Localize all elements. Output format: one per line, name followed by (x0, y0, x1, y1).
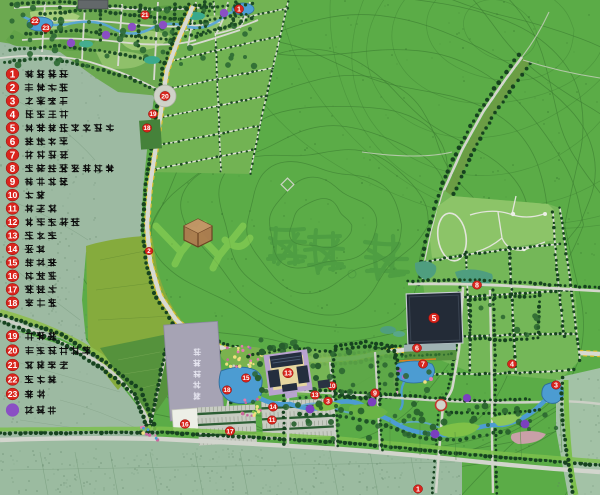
svg-text:8: 8 (10, 164, 16, 175)
svg-text:14: 14 (270, 404, 277, 411)
svg-text:20: 20 (161, 93, 169, 100)
svg-text:13: 13 (8, 231, 18, 241)
svg-text:6: 6 (415, 345, 419, 353)
svg-text:20: 20 (8, 346, 18, 356)
svg-text:19: 19 (150, 111, 157, 118)
svg-text:2: 2 (147, 248, 151, 255)
svg-text:1: 1 (416, 486, 420, 494)
svg-text:13: 13 (312, 392, 319, 399)
svg-text:1: 1 (10, 70, 16, 81)
svg-text:23: 23 (43, 25, 50, 32)
svg-text:22: 22 (32, 18, 39, 25)
svg-text:21: 21 (142, 12, 149, 19)
svg-text:15: 15 (8, 258, 18, 268)
svg-text:6: 6 (10, 137, 16, 148)
svg-text:12: 12 (8, 217, 18, 227)
svg-text:16: 16 (181, 421, 189, 428)
svg-text:17: 17 (8, 284, 18, 294)
svg-text:16: 16 (8, 271, 18, 281)
svg-text:8: 8 (475, 282, 479, 290)
svg-text:23: 23 (8, 389, 18, 399)
svg-text:3: 3 (326, 398, 330, 405)
svg-text:9: 9 (10, 177, 16, 188)
svg-text:3: 3 (10, 96, 16, 107)
svg-text:13: 13 (284, 371, 292, 378)
svg-text:21: 21 (8, 360, 18, 370)
svg-text:5: 5 (10, 123, 16, 134)
svg-text:1: 1 (237, 6, 241, 14)
svg-text:17: 17 (226, 428, 234, 435)
svg-text:4: 4 (510, 361, 514, 369)
svg-text:7: 7 (421, 361, 425, 369)
svg-text:3: 3 (554, 382, 558, 390)
svg-text:5: 5 (432, 313, 437, 323)
svg-text:19: 19 (8, 331, 18, 341)
svg-text:22: 22 (8, 375, 18, 385)
svg-text:18: 18 (8, 298, 18, 308)
svg-text:18: 18 (144, 125, 151, 132)
svg-text:10: 10 (8, 190, 18, 200)
svg-text:4: 4 (10, 110, 16, 121)
svg-text:7: 7 (10, 150, 16, 161)
svg-text:9: 9 (373, 390, 377, 398)
svg-text:14: 14 (8, 244, 18, 254)
svg-text:18: 18 (224, 387, 231, 394)
svg-text:11: 11 (8, 204, 17, 214)
svg-text:11: 11 (269, 417, 276, 424)
svg-text:2: 2 (10, 83, 16, 94)
svg-text:15: 15 (243, 375, 250, 382)
